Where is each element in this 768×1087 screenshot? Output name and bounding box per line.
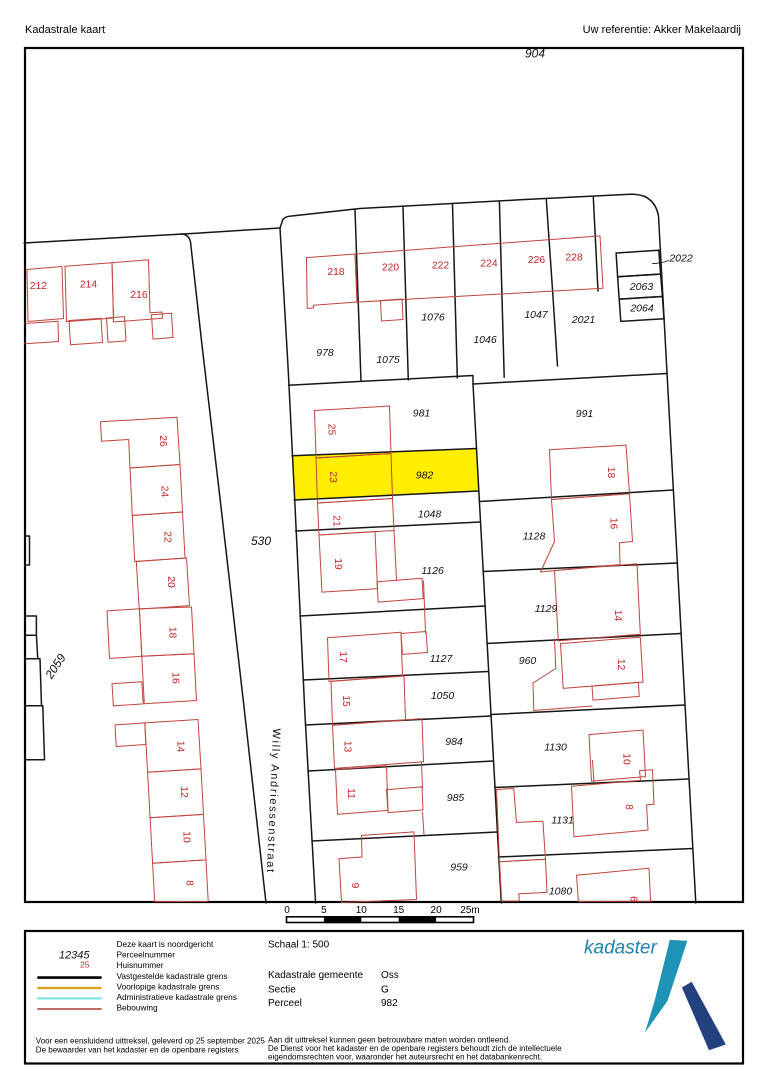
svg-text:1048: 1048 [418, 509, 442, 521]
svg-text:eigendomsrechten voor, waarond: eigendomsrechten voor, waaronder het aut… [268, 1053, 542, 1062]
svg-text:De bewaarder van het kadaster: De bewaarder van het kadaster en de open… [36, 1045, 239, 1054]
svg-text:222: 222 [432, 261, 449, 272]
svg-text:Voor een eensluidend uittrekse: Voor een eensluidend uittreksel, gelever… [36, 1037, 266, 1046]
svg-text:982: 982 [381, 998, 398, 1009]
svg-text:228: 228 [565, 253, 582, 264]
svg-text:1131: 1131 [551, 815, 574, 827]
svg-text:224: 224 [480, 259, 497, 270]
svg-text:212: 212 [30, 281, 47, 292]
svg-text:2021: 2021 [571, 314, 595, 326]
svg-text:Kadastrale gemeente: Kadastrale gemeente [268, 970, 364, 981]
svg-text:Sectie: Sectie [268, 985, 296, 996]
svg-text:1128: 1128 [523, 531, 546, 543]
svg-text:16: 16 [170, 672, 181, 684]
svg-text:Schaal 1: 500: Schaal 1: 500 [268, 940, 330, 951]
svg-text:22: 22 [162, 531, 173, 543]
svg-text:Bebouwing: Bebouwing [117, 1002, 158, 1012]
svg-text:978: 978 [316, 347, 334, 359]
svg-text:226: 226 [528, 255, 545, 266]
svg-text:14: 14 [612, 610, 623, 622]
svg-text:214: 214 [80, 280, 97, 291]
svg-text:1130: 1130 [544, 742, 567, 754]
svg-text:1075: 1075 [376, 354, 400, 366]
svg-text:Perceelnummer: Perceelnummer [117, 950, 176, 960]
svg-text:991: 991 [576, 408, 594, 420]
svg-text:1129: 1129 [535, 603, 558, 615]
svg-text:13: 13 [342, 741, 353, 753]
svg-text:8: 8 [623, 804, 634, 810]
svg-text:10: 10 [621, 753, 632, 765]
svg-text:220: 220 [382, 263, 399, 274]
svg-text:25: 25 [80, 960, 90, 970]
svg-text:17: 17 [337, 651, 348, 663]
svg-text:12: 12 [615, 659, 626, 671]
svg-text:1050: 1050 [431, 690, 455, 702]
svg-text:18: 18 [167, 627, 178, 639]
svg-text:8: 8 [184, 880, 195, 886]
svg-text:2064: 2064 [629, 303, 654, 315]
svg-text:10: 10 [181, 831, 192, 843]
svg-text:15: 15 [393, 905, 405, 916]
svg-text:218: 218 [327, 267, 344, 278]
svg-text:11: 11 [345, 788, 356, 799]
svg-text:1047: 1047 [524, 309, 549, 321]
svg-text:0: 0 [284, 905, 290, 916]
svg-text:19: 19 [332, 558, 343, 570]
svg-text:26: 26 [157, 435, 168, 447]
svg-text:14: 14 [175, 741, 186, 753]
svg-text:Oss: Oss [381, 970, 399, 981]
svg-text:25m: 25m [460, 905, 479, 916]
svg-text:6: 6 [628, 896, 639, 902]
svg-text:Vastgestelde kadastrale grens: Vastgestelde kadastrale grens [117, 971, 228, 981]
svg-text:Huisnummer: Huisnummer [117, 960, 164, 970]
svg-text:G: G [381, 985, 389, 996]
svg-text:1080: 1080 [549, 886, 573, 898]
svg-text:1076: 1076 [421, 312, 445, 324]
svg-text:2063: 2063 [629, 281, 654, 293]
svg-text:23: 23 [327, 471, 338, 483]
svg-text:530: 530 [251, 534, 271, 548]
svg-text:12: 12 [178, 786, 189, 798]
svg-text:960: 960 [519, 655, 537, 667]
svg-text:5: 5 [321, 905, 327, 916]
svg-text:25: 25 [326, 424, 337, 436]
svg-text:15: 15 [340, 695, 351, 707]
svg-text:9: 9 [349, 883, 360, 889]
svg-text:981: 981 [413, 408, 431, 420]
svg-text:216: 216 [130, 290, 147, 301]
svg-text:Willy Andriessenstraat: Willy Andriessenstraat [264, 728, 282, 874]
svg-text:20: 20 [431, 905, 443, 916]
svg-text:2022: 2022 [668, 253, 693, 265]
svg-text:984: 984 [445, 736, 463, 748]
svg-text:Deze kaart is noordgericht: Deze kaart is noordgericht [117, 939, 215, 949]
svg-text:1126: 1126 [421, 565, 444, 577]
svg-text:20: 20 [165, 576, 176, 588]
svg-text:985: 985 [447, 792, 465, 804]
svg-text:21: 21 [331, 515, 342, 527]
svg-text:24: 24 [159, 486, 170, 498]
svg-text:Administratieve kadastrale gre: Administratieve kadastrale grens [117, 992, 237, 1002]
svg-text:982: 982 [416, 470, 434, 482]
svg-text:959: 959 [450, 862, 468, 874]
svg-text:904: 904 [525, 47, 545, 61]
svg-text:Voorlopige kadastrale grens: Voorlopige kadastrale grens [117, 982, 220, 992]
svg-text:10: 10 [356, 905, 368, 916]
svg-text:kadaster: kadaster [584, 938, 658, 959]
svg-text:18: 18 [605, 467, 616, 479]
svg-text:16: 16 [608, 518, 619, 530]
svg-text:1127: 1127 [430, 653, 454, 665]
svg-text:Perceel: Perceel [268, 998, 302, 1009]
svg-text:2059: 2059 [42, 651, 69, 682]
svg-text:1046: 1046 [473, 334, 497, 346]
